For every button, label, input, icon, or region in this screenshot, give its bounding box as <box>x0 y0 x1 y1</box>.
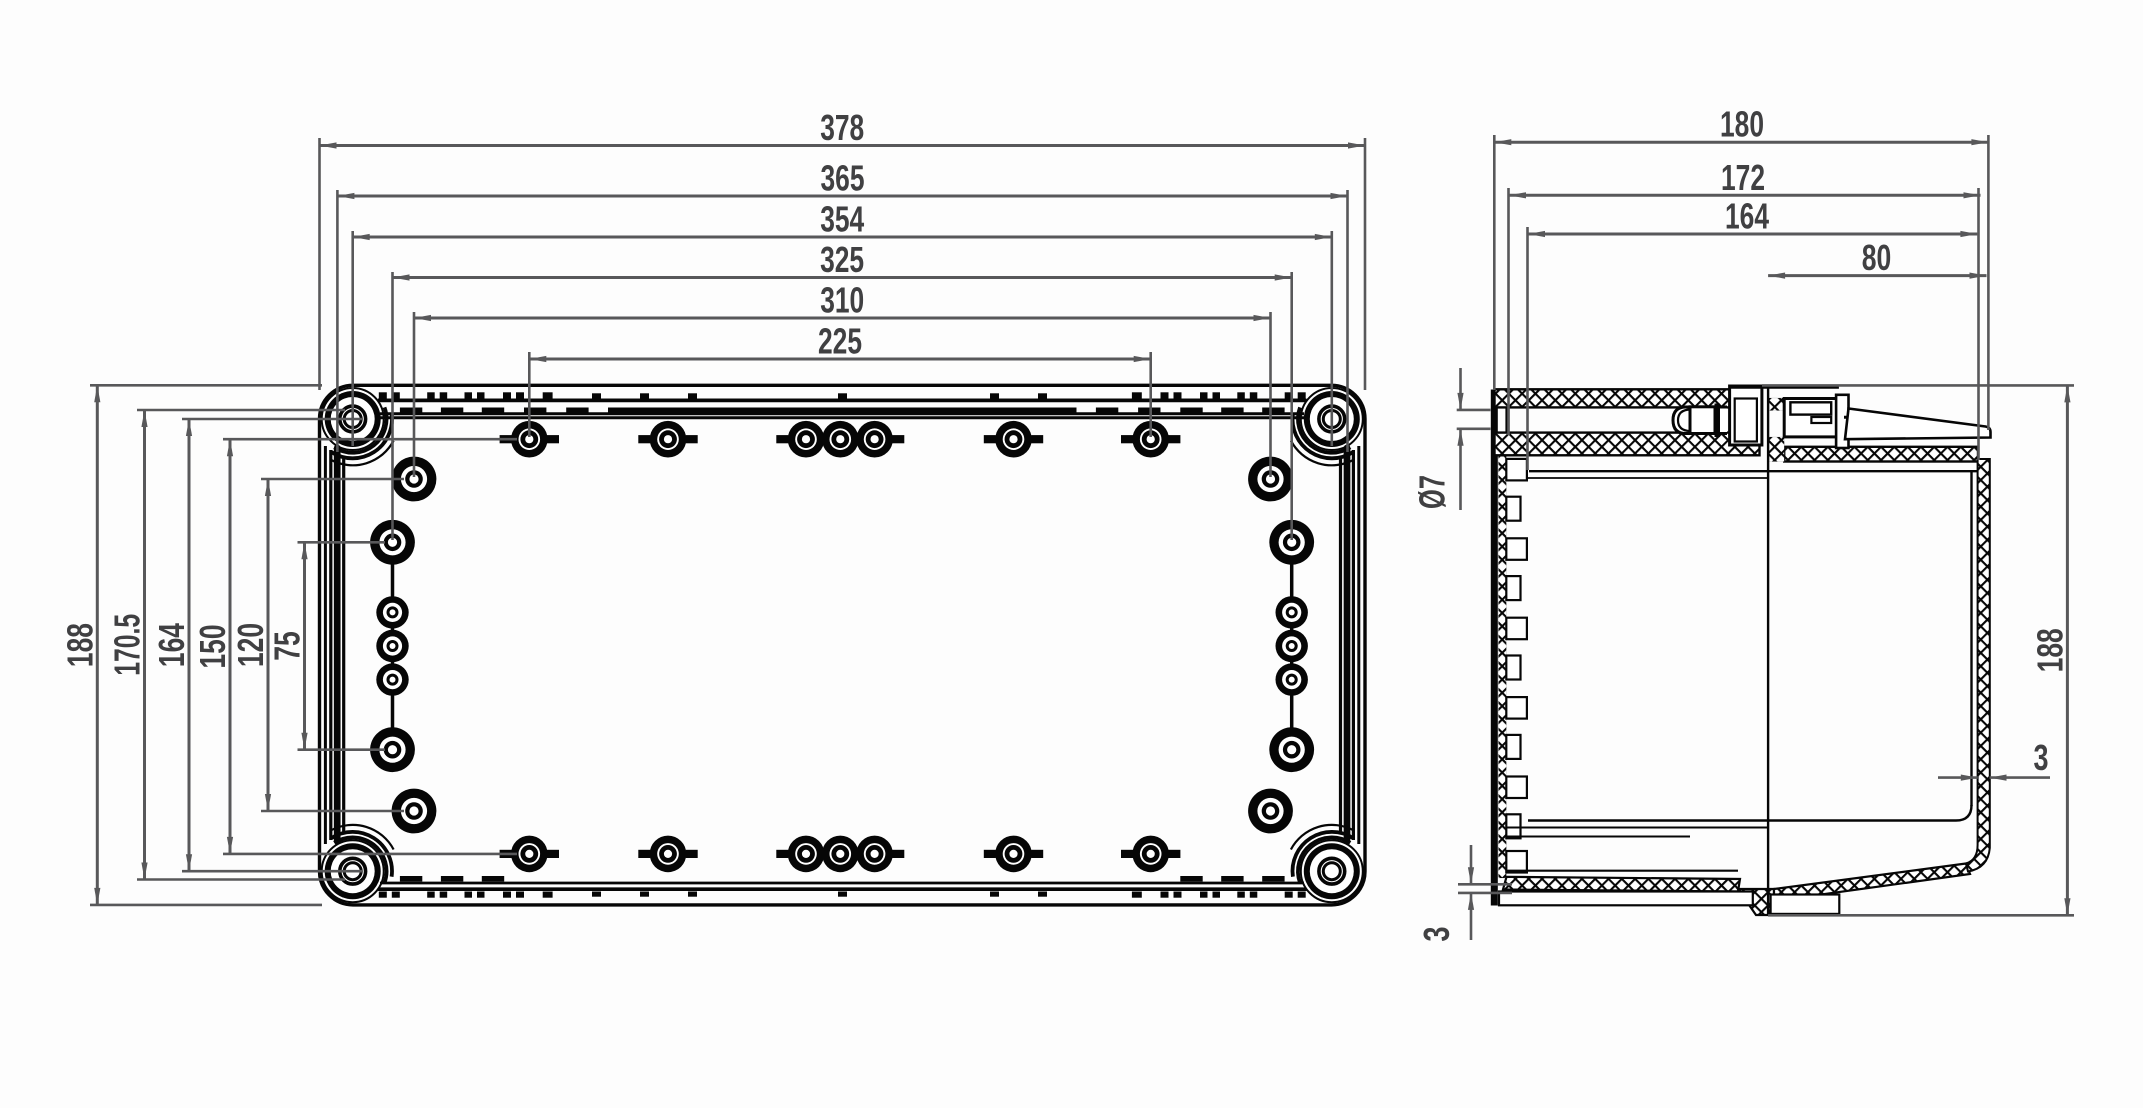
svg-text:80: 80 <box>1862 237 1892 278</box>
svg-text:Ø7: Ø7 <box>1412 475 1453 509</box>
svg-text:150: 150 <box>192 625 233 669</box>
svg-text:365: 365 <box>821 158 865 199</box>
svg-text:75: 75 <box>267 631 308 661</box>
svg-text:172: 172 <box>1721 157 1765 198</box>
svg-text:378: 378 <box>820 107 864 148</box>
svg-text:170.5: 170.5 <box>107 614 148 676</box>
svg-text:3: 3 <box>1416 927 1457 942</box>
svg-text:164: 164 <box>151 623 192 667</box>
svg-text:180: 180 <box>1720 104 1764 145</box>
svg-text:188: 188 <box>2029 628 2070 672</box>
svg-text:325: 325 <box>820 239 864 280</box>
svg-text:188: 188 <box>59 623 100 667</box>
svg-text:310: 310 <box>820 280 864 321</box>
svg-text:354: 354 <box>820 199 864 240</box>
svg-text:164: 164 <box>1725 196 1769 237</box>
svg-text:225: 225 <box>818 321 862 362</box>
svg-text:120: 120 <box>230 623 271 667</box>
svg-text:3: 3 <box>2034 737 2049 778</box>
